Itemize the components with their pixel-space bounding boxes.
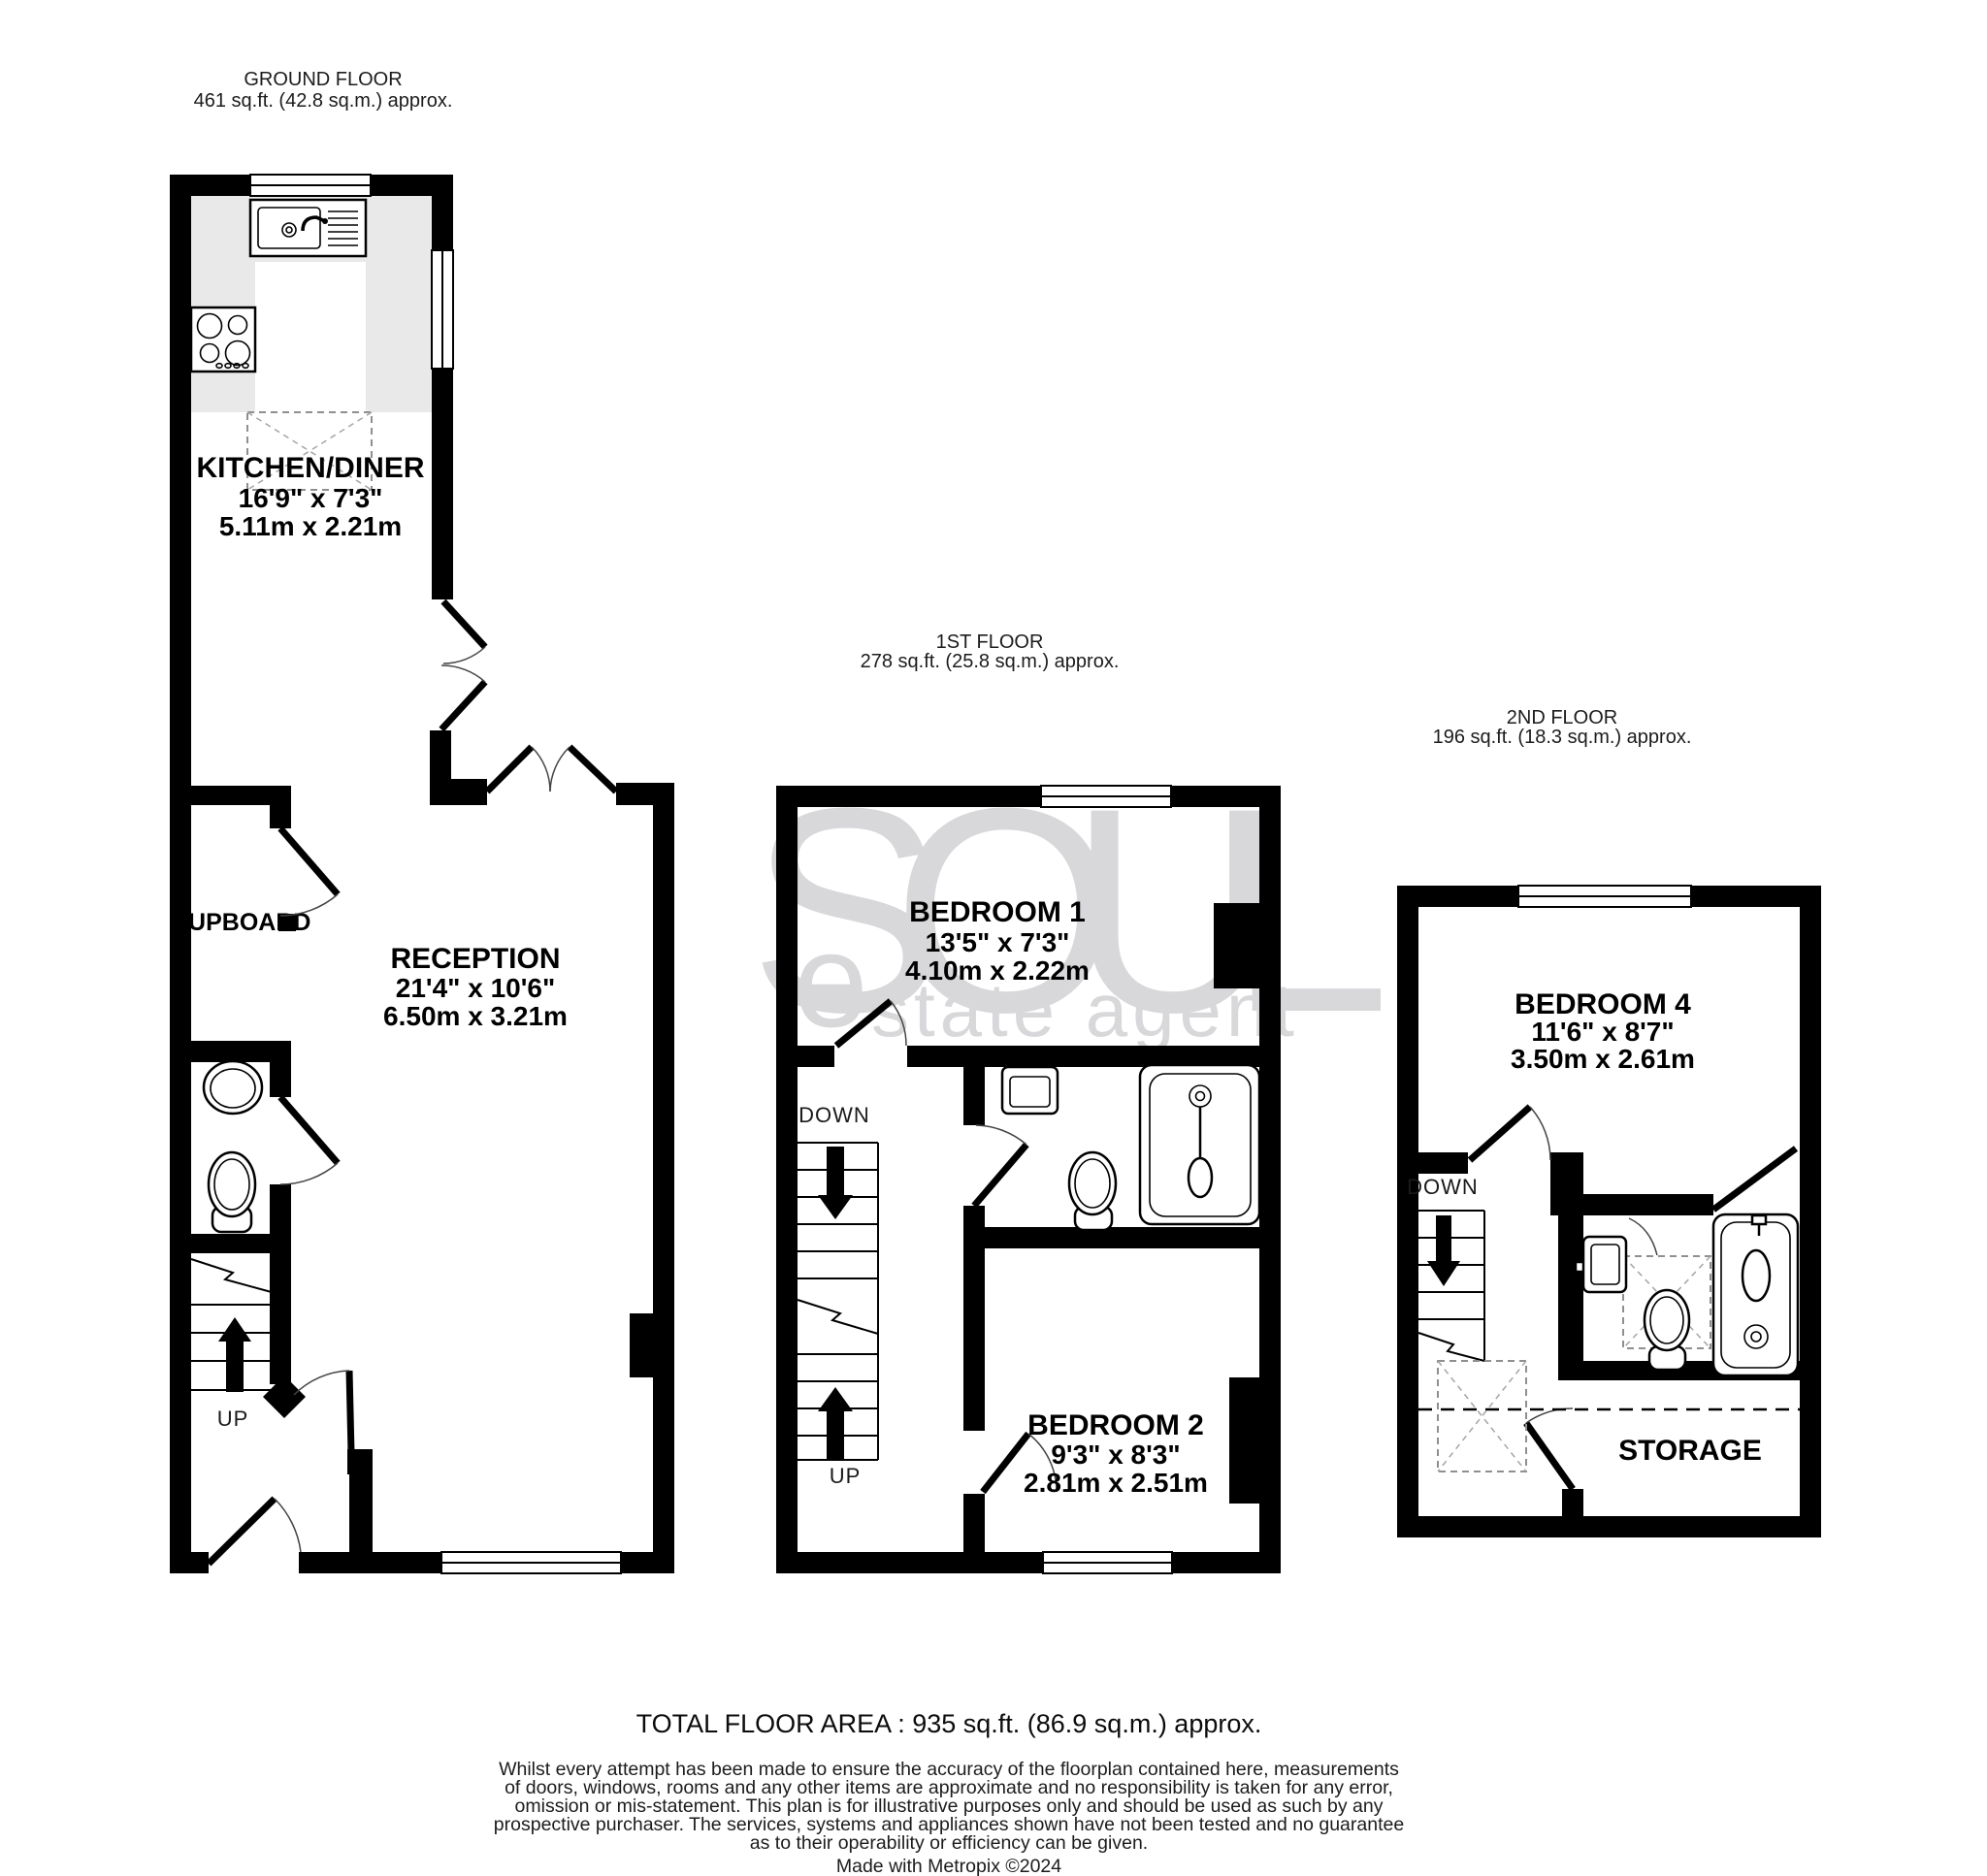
bedroom2-metric: 2.81m x 2.51m	[1024, 1468, 1208, 1498]
floorplan-drawing: GROUND FLOOR 461 sq.ft. (42.8 sq.m.) app…	[0, 0, 1987, 1876]
bedroom2-name: BEDROOM 2	[1027, 1409, 1204, 1441]
first-down-label: DOWN	[798, 1103, 870, 1127]
kitchen-name: KITCHEN/DINER	[196, 452, 424, 484]
floorplan-page: { "ground": { "title": "GROUND FLOOR", "…	[0, 0, 1987, 1876]
second-stairs	[1418, 1211, 1484, 1361]
reception-imperial: 21'4" x 10'6"	[396, 973, 555, 1003]
reception-metric: 6.50m x 3.21m	[383, 1001, 568, 1031]
bathroom-sink	[1002, 1067, 1058, 1114]
first-up-label: UP	[830, 1464, 862, 1488]
bedroom2-imperial: 9'3" x 8'3"	[1051, 1439, 1180, 1470]
second-floor-plan: 2ND FLOOR 196 sq.ft. (18.3 sq.m.) approx…	[1397, 707, 1821, 1537]
kitchen-imperial: 16'9" x 7'3"	[239, 483, 383, 513]
wc-sink	[204, 1061, 262, 1114]
second-floor-area: 196 sq.ft. (18.3 sq.m.) approx.	[1433, 727, 1692, 748]
wc-toilet	[209, 1152, 255, 1232]
first-floor-title: 1ST FLOOR	[936, 631, 1044, 653]
total-floor-area: TOTAL FLOOR AREA : 935 sq.ft. (86.9 sq.m…	[636, 1709, 1262, 1738]
footer: TOTAL FLOOR AREA : 935 sq.ft. (86.9 sq.m…	[494, 1709, 1404, 1876]
second-down-label: DOWN	[1407, 1175, 1479, 1199]
bedroom4-imperial: 11'6" x 8'7"	[1531, 1017, 1674, 1047]
bedroom4-metric: 3.50m x 2.61m	[1511, 1044, 1695, 1074]
bedroom1-imperial: 13'5" x 7'3"	[926, 927, 1070, 957]
hob-icon	[191, 307, 255, 372]
kitchen-metric: 5.11m x 2.21m	[219, 511, 402, 541]
bedroom1-metric: 4.10m x 2.22m	[905, 955, 1090, 986]
second-bath	[1713, 1214, 1798, 1375]
storage-label: STORAGE	[1618, 1435, 1762, 1467]
disclaimer-line: as to their operability or efficiency ca…	[750, 1832, 1148, 1854]
down-arrow-icon	[1427, 1215, 1460, 1286]
down-arrow-icon	[818, 1147, 853, 1219]
second-toilet	[1645, 1290, 1689, 1370]
up-arrow-icon	[218, 1317, 251, 1392]
reception-name: RECEPTION	[390, 943, 560, 975]
rooflight	[1438, 1361, 1526, 1472]
first-stairs	[798, 1143, 878, 1460]
second-sink	[1576, 1237, 1626, 1292]
kitchen-sink	[250, 200, 366, 256]
first-floor-area: 278 sq.ft. (25.8 sq.m.) approx.	[861, 651, 1120, 672]
second-windows	[1518, 886, 1691, 907]
ground-floor-plan: GROUND FLOOR 461 sq.ft. (42.8 sq.m.) app…	[170, 69, 674, 1573]
ground-stairs	[191, 1253, 278, 1392]
bedroom1-name: BEDROOM 1	[909, 896, 1086, 928]
ground-floor-title: GROUND FLOOR	[244, 69, 402, 90]
up-arrow-icon	[818, 1387, 853, 1460]
first-floor-plan: 1ST FLOOR 278 sq.ft. (25.8 sq.m.) approx…	[776, 631, 1281, 1573]
bathroom-toilet	[1069, 1152, 1116, 1230]
ground-up-label: UP	[217, 1407, 249, 1431]
bathroom-bath	[1140, 1065, 1259, 1224]
metropix-credit: Made with Metropix ©2024	[836, 1856, 1061, 1876]
second-floor-title: 2ND FLOOR	[1507, 707, 1617, 728]
ground-floor-area: 461 sq.ft. (42.8 sq.m.) approx.	[194, 90, 453, 112]
